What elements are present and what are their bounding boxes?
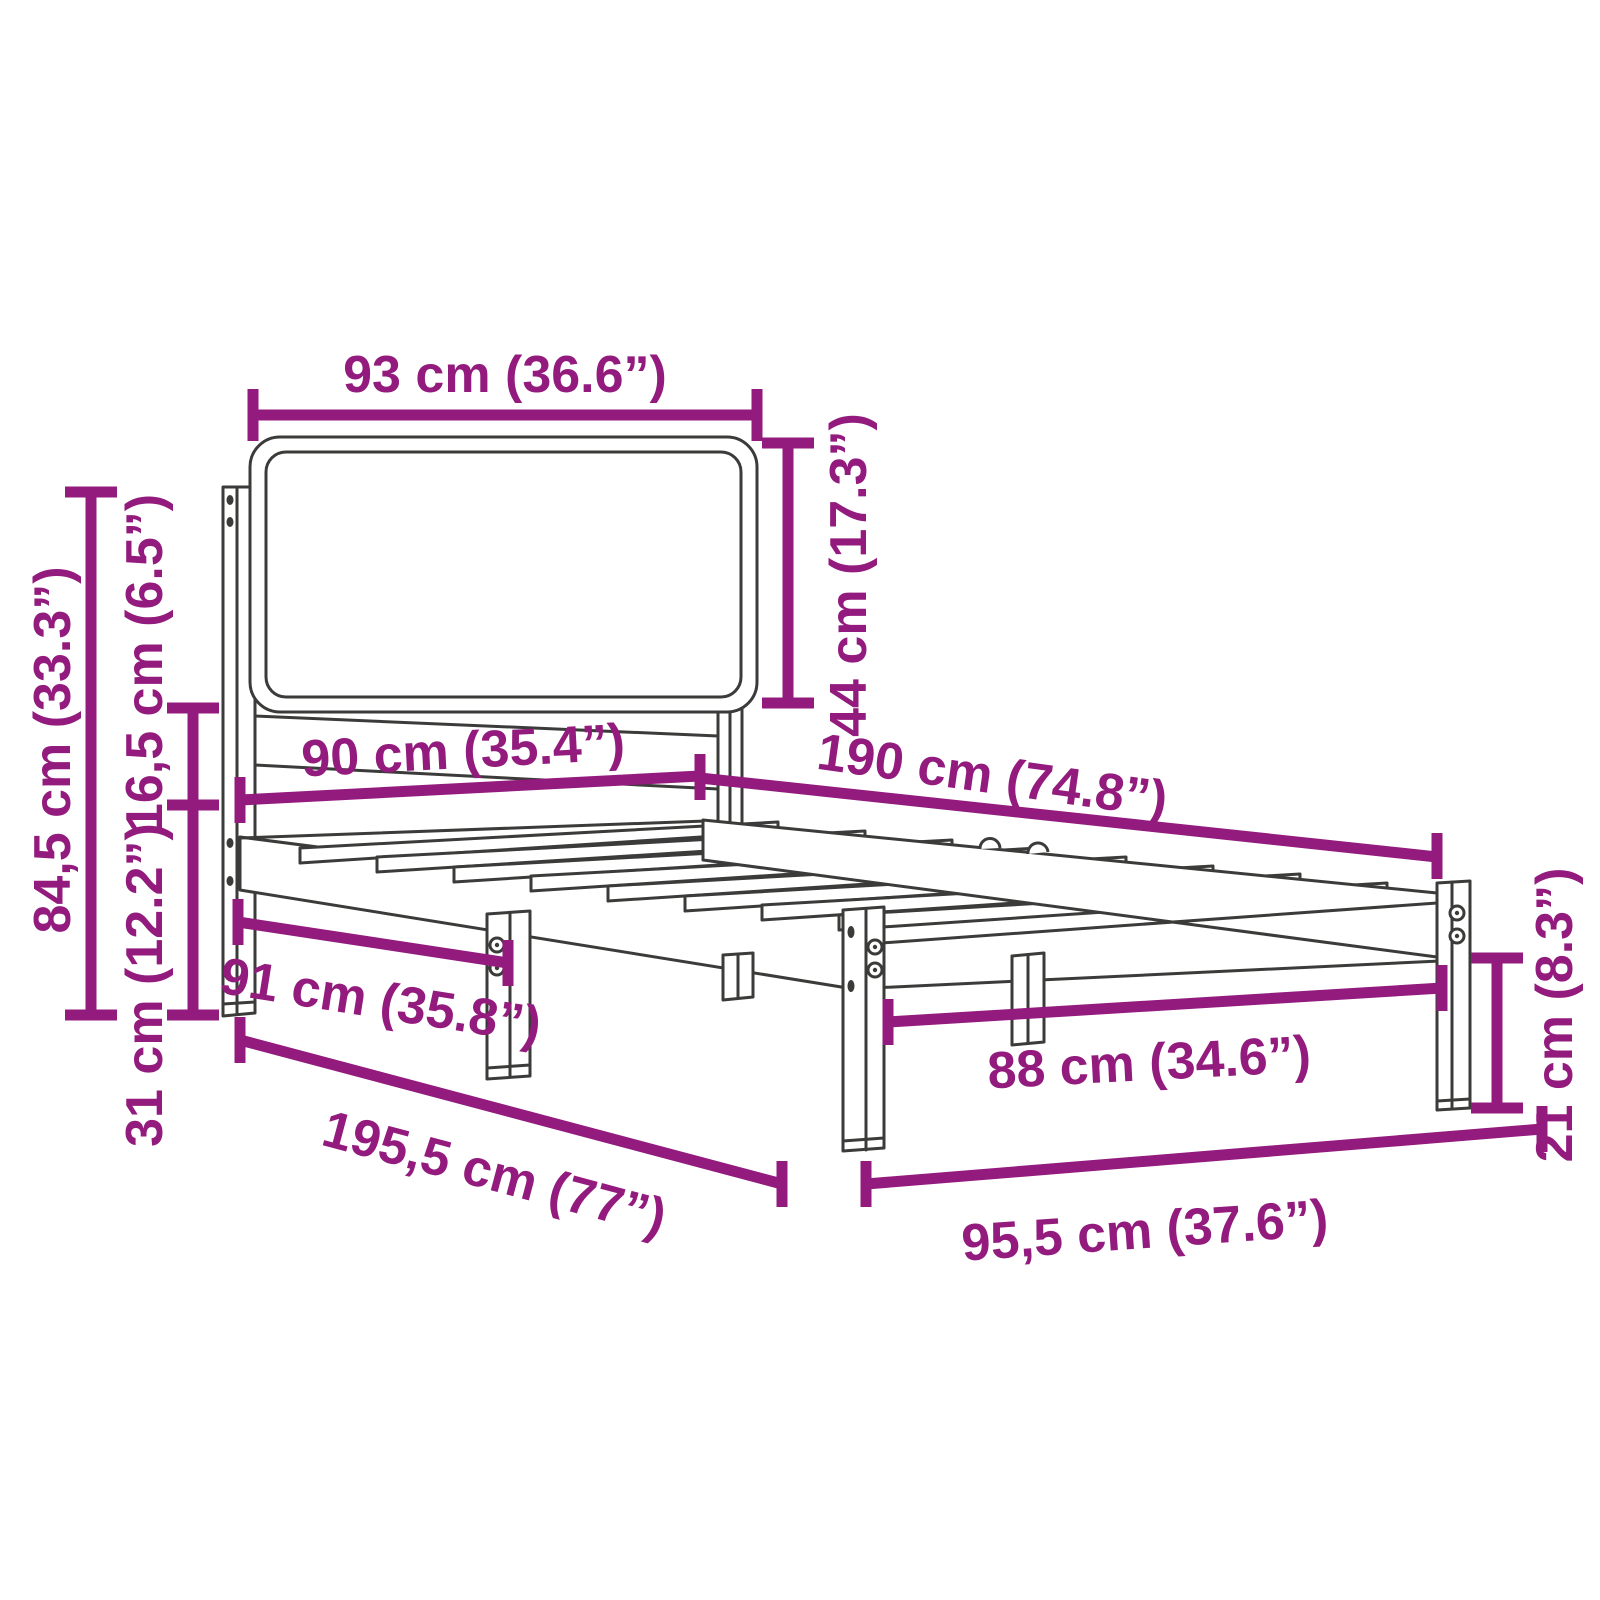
bed-dimension-diagram: 93 cm (36.6”) 44 cm (17.3”) 84,5 cm (33.… [0,0,1600,1600]
screw-icon [227,495,234,505]
screw-icon [227,517,234,527]
headboard-panel [250,437,757,712]
dim-label-headboard-width: 93 cm (36.6”) [343,346,667,404]
center-support-leg [723,953,753,1000]
far-leg-top [980,838,1000,849]
dimension-diagram-page: 93 cm (36.6”) 44 cm (17.3”) 84,5 cm (33.… [0,0,1600,1600]
near-foot-leg [843,907,884,1151]
screw-icon [227,876,234,886]
dim-label-total-height: 84,5 cm (33.3”) [24,566,82,933]
screw-icon [848,926,855,938]
dim-label-frame-height: 31 cm (12.2”) [116,823,174,1147]
far-mid-leg [1012,953,1044,1045]
dim-label-panel-gap-height: 16,5 cm (6.5”) [116,494,174,832]
dim-label-headboard-panel-height: 44 cm (17.3”) [820,413,878,737]
screw-icon [848,980,855,992]
screw-icon [227,838,234,848]
dim-label-leg-height: 21 cm (8.3”) [1526,868,1584,1163]
headboard-right-post [718,703,742,838]
